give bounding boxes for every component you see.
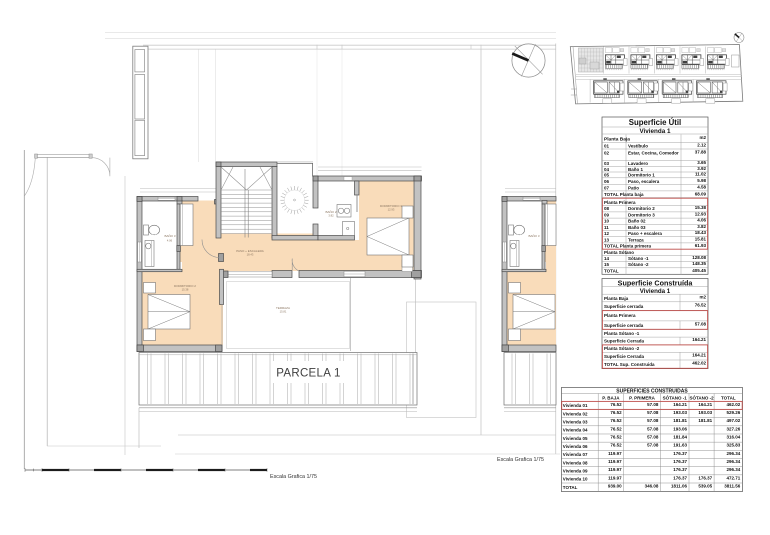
svg-text:BAÑO 3: BAÑO 3: [164, 233, 175, 238]
svg-text:3.82: 3.82: [328, 214, 334, 218]
svg-text:76.52: 76.52: [610, 418, 622, 423]
svg-text:15.81: 15.81: [695, 236, 707, 241]
svg-text:Vivienda 03: Vivienda 03: [563, 419, 588, 424]
svg-text:Vivienda 06: Vivienda 06: [563, 444, 588, 449]
svg-text:DORMITORIO 3: DORMITORIO 3: [380, 204, 402, 208]
svg-text:Vivienda 1: Vivienda 1: [639, 128, 671, 135]
svg-text:119.97: 119.97: [608, 451, 622, 456]
svg-text:11.02: 11.02: [695, 172, 707, 177]
svg-text:462.02: 462.02: [692, 361, 706, 366]
svg-text:1811.06: 1811.06: [671, 484, 688, 489]
svg-text:4.58: 4.58: [697, 184, 706, 189]
svg-text:57.08: 57.08: [695, 322, 707, 327]
svg-text:76.52: 76.52: [610, 402, 622, 407]
svg-text:57.08: 57.08: [647, 426, 659, 431]
svg-text:15.38: 15.38: [695, 205, 707, 210]
svg-text:TOTAL: TOTAL: [721, 395, 736, 400]
svg-text:Vivienda 08: Vivienda 08: [563, 460, 588, 465]
svg-text:Superficie Cerrada: Superficie Cerrada: [604, 354, 645, 359]
svg-text:325.83: 325.83: [727, 443, 741, 448]
svg-text:57.08: 57.08: [647, 418, 659, 423]
svg-text:5.98: 5.98: [697, 178, 706, 183]
svg-text:18.43: 18.43: [247, 253, 254, 257]
svg-text:296.34: 296.34: [727, 459, 741, 464]
svg-text:296.34: 296.34: [727, 467, 741, 472]
svg-text:3.65: 3.65: [697, 160, 706, 165]
svg-text:SÓTANO -2: SÓTANO -2: [690, 393, 715, 400]
svg-text:Vivienda 09: Vivienda 09: [563, 468, 588, 473]
svg-text:Dormitorio 1: Dormitorio 1: [628, 173, 655, 178]
svg-text:57.08: 57.08: [647, 443, 659, 448]
svg-text:181.84: 181.84: [673, 434, 687, 439]
svg-text:Patio: Patio: [628, 185, 639, 190]
svg-text:12.93: 12.93: [388, 208, 395, 212]
svg-text:76.52: 76.52: [610, 434, 622, 439]
svg-text:405.45: 405.45: [692, 268, 706, 273]
svg-text:14: 14: [604, 256, 610, 261]
svg-text:327.26: 327.26: [727, 426, 741, 431]
svg-text:11: 11: [604, 225, 609, 230]
svg-text:Superficie cerrada: Superficie cerrada: [604, 304, 644, 309]
svg-text:PARCELA 1: PARCELA 1: [276, 368, 341, 380]
svg-text:Superficie Útil: Superficie Útil: [629, 118, 681, 127]
svg-text:164.21: 164.21: [673, 402, 687, 407]
svg-text:37.88: 37.88: [695, 150, 707, 155]
svg-text:Paso + escalera: Paso + escalera: [628, 231, 662, 236]
svg-text:07: 07: [604, 185, 610, 190]
svg-text:15: 15: [604, 262, 610, 267]
svg-text:529.26: 529.26: [727, 410, 741, 415]
svg-text:10: 10: [604, 219, 610, 224]
svg-text:316.04: 316.04: [727, 434, 741, 439]
svg-text:Paso, escalera: Paso, escalera: [628, 179, 660, 184]
svg-text:193.03: 193.03: [698, 410, 712, 415]
svg-text:Escala Grafica 1/75: Escala Grafica 1/75: [497, 457, 544, 463]
svg-text:539.05: 539.05: [698, 484, 712, 489]
svg-text:193.06: 193.06: [673, 426, 687, 431]
svg-text:Planta Sótano: Planta Sótano: [604, 250, 634, 255]
svg-text:296.34: 296.34: [727, 451, 741, 456]
svg-text:DORMITORIO 2: DORMITORIO 2: [174, 284, 196, 288]
svg-text:Escala Grafica 1/75: Escala Grafica 1/75: [270, 474, 317, 480]
svg-text:176.37: 176.37: [673, 459, 687, 464]
svg-text:Vivienda 01: Vivienda 01: [563, 403, 588, 408]
svg-text:3.92: 3.92: [697, 166, 706, 171]
svg-text:TOTAL Planta primera: TOTAL Planta primera: [604, 244, 652, 249]
svg-text:P. PRIMERA: P. PRIMERA: [629, 395, 655, 400]
svg-text:176.37: 176.37: [673, 451, 687, 456]
svg-text:61.93: 61.93: [695, 243, 707, 248]
svg-text:08: 08: [604, 206, 610, 211]
svg-text:939.00: 939.00: [608, 484, 622, 489]
svg-text:03: 03: [604, 161, 610, 166]
svg-text:Baño 02: Baño 02: [628, 219, 646, 224]
svg-text:68.09: 68.09: [695, 191, 707, 196]
svg-text:Vivienda 05: Vivienda 05: [563, 436, 588, 441]
svg-text:497.02: 497.02: [727, 418, 741, 423]
svg-text:18.43: 18.43: [695, 230, 707, 235]
svg-text:BAÑO 2: BAÑO 2: [325, 209, 336, 214]
svg-text:12.93: 12.93: [695, 212, 707, 217]
svg-text:Vivienda 10: Vivienda 10: [563, 477, 588, 482]
svg-text:P. BAJA: P. BAJA: [602, 395, 620, 400]
svg-text:TOTAL: TOTAL: [563, 485, 578, 490]
svg-text:Planta Baja: Planta Baja: [604, 136, 630, 142]
svg-text:Vivienda 04: Vivienda 04: [563, 428, 588, 433]
svg-text:Superficie Construída: Superficie Construída: [618, 278, 694, 287]
svg-text:TOTAL Planta baja: TOTAL Planta baja: [604, 192, 644, 197]
svg-text:BAÑO 3: BAÑO 3: [528, 233, 539, 238]
svg-text:Planta Sótano -2: Planta Sótano -2: [604, 346, 640, 351]
svg-text:Dormitorio 3: Dormitorio 3: [628, 213, 655, 218]
svg-text:176.37: 176.37: [673, 467, 687, 472]
svg-text:PASO + ESCALERA: PASO + ESCALERA: [236, 249, 264, 253]
svg-text:Superficie cerrada: Superficie cerrada: [604, 323, 644, 328]
svg-text:191.63: 191.63: [673, 443, 687, 448]
svg-text:4.06: 4.06: [167, 238, 173, 242]
svg-text:Superficie Cerrada: Superficie Cerrada: [604, 339, 645, 344]
svg-text:SÓTANO -1: SÓTANO -1: [663, 393, 688, 400]
svg-text:57.08: 57.08: [647, 402, 659, 407]
svg-text:09: 09: [604, 213, 610, 218]
svg-text:Vivienda 02: Vivienda 02: [563, 411, 588, 416]
svg-text:Terraza: Terraza: [628, 237, 644, 242]
svg-text:181.81: 181.81: [698, 418, 712, 423]
svg-text:2.12: 2.12: [697, 143, 706, 148]
svg-text:02: 02: [604, 151, 610, 156]
svg-text:176.37: 176.37: [673, 475, 687, 480]
svg-text:Sótano -1: Sótano -1: [628, 256, 649, 261]
svg-text:128.08: 128.08: [692, 255, 706, 260]
svg-text:76.52: 76.52: [610, 443, 622, 448]
svg-text:Baño 03: Baño 03: [628, 225, 646, 230]
svg-text:Lavadero: Lavadero: [628, 161, 648, 166]
svg-text:193.03: 193.03: [673, 410, 687, 415]
svg-text:346.08: 346.08: [645, 484, 659, 489]
svg-text:3.82: 3.82: [697, 224, 706, 229]
svg-text:Planta Baja: Planta Baja: [604, 296, 629, 301]
svg-text:57.08: 57.08: [647, 434, 659, 439]
svg-text:05: 05: [604, 173, 610, 178]
svg-text:15.81: 15.81: [280, 310, 287, 314]
svg-text:04: 04: [604, 167, 610, 172]
svg-text:TOTAL: TOTAL: [604, 269, 619, 274]
svg-text:01: 01: [604, 144, 610, 149]
svg-text:Planta Primera: Planta Primera: [604, 200, 636, 205]
svg-text:TERRAZA: TERRAZA: [276, 306, 290, 310]
svg-text:76.52: 76.52: [610, 426, 622, 431]
svg-text:13: 13: [604, 237, 610, 242]
svg-text:119.97: 119.97: [608, 475, 622, 480]
svg-text:Vivienda 07: Vivienda 07: [563, 452, 588, 457]
svg-text:TOTAL Sup. Construida: TOTAL Sup. Construida: [604, 362, 655, 367]
svg-text:119.97: 119.97: [608, 467, 622, 472]
svg-text:Dormitorio 2: Dormitorio 2: [628, 206, 655, 211]
svg-text:462.02: 462.02: [727, 402, 741, 407]
svg-text:472.71: 472.71: [727, 475, 741, 480]
svg-text:148.35: 148.35: [692, 261, 706, 266]
svg-text:164.21: 164.21: [692, 353, 706, 358]
svg-text:m2: m2: [699, 295, 706, 300]
svg-text:181.81: 181.81: [673, 418, 687, 423]
svg-text:119.97: 119.97: [608, 459, 622, 464]
svg-text:Estar, Cocina, Comedor: Estar, Cocina, Comedor: [628, 151, 679, 156]
svg-text:15.38: 15.38: [182, 288, 189, 292]
svg-text:3811.56: 3811.56: [724, 484, 741, 489]
svg-text:Vivienda 1: Vivienda 1: [640, 288, 671, 295]
svg-text:Sótano -2: Sótano -2: [628, 262, 649, 267]
svg-text:76.52: 76.52: [610, 410, 622, 415]
svg-text:164.21: 164.21: [698, 402, 712, 407]
svg-text:m2: m2: [699, 135, 706, 140]
svg-text:12: 12: [604, 231, 610, 236]
svg-text:Planta Primera: Planta Primera: [604, 313, 636, 318]
svg-text:Planta Sótano -1: Planta Sótano -1: [604, 331, 640, 336]
svg-text:176.37: 176.37: [698, 475, 712, 480]
svg-text:4.06: 4.06: [697, 218, 706, 223]
svg-text:164.21: 164.21: [692, 337, 706, 342]
svg-text:57.08: 57.08: [647, 410, 659, 415]
svg-text:76.52: 76.52: [695, 302, 707, 307]
svg-text:06: 06: [604, 179, 610, 184]
svg-text:Baño 1: Baño 1: [628, 167, 644, 172]
svg-text:Vestíbulo: Vestíbulo: [628, 144, 648, 149]
